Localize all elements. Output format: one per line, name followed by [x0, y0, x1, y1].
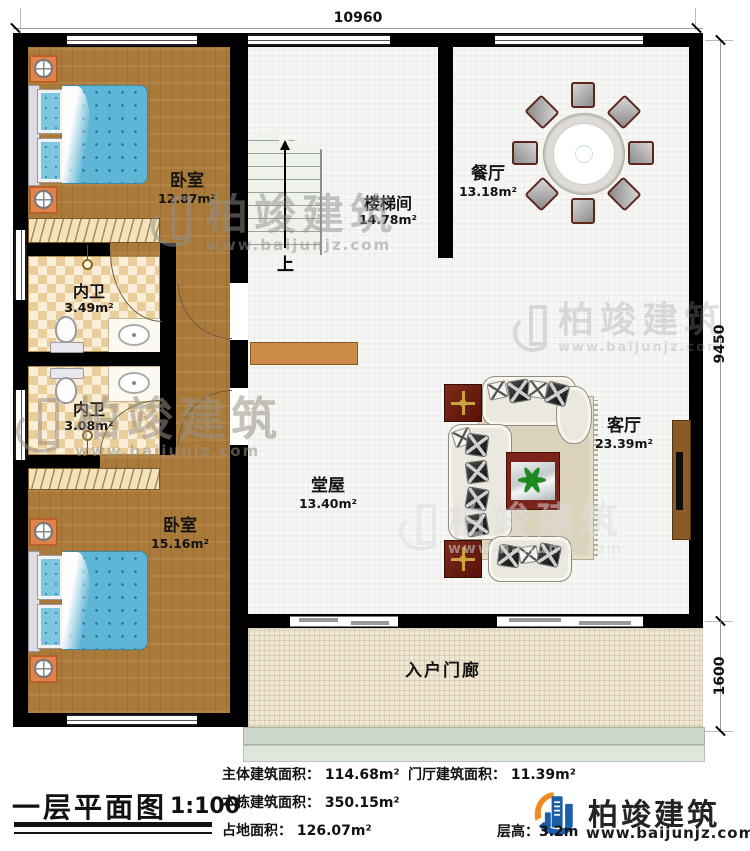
toilet1-tank — [50, 342, 84, 353]
toilet1-bowl — [55, 316, 77, 343]
porch-step-2 — [243, 745, 705, 762]
bed-sheet-fold — [62, 86, 92, 183]
nightstand — [29, 518, 58, 546]
window-bedroom2-bottom — [67, 714, 197, 726]
stat-footprint-area: 占地面积： 126.07m² — [222, 820, 372, 840]
dining-chair — [571, 82, 595, 108]
hall-area: 13.40m² — [290, 497, 366, 511]
bed2-pillow — [38, 605, 63, 648]
dining-label: 餐厅 13.18m² — [448, 165, 528, 199]
window-bath2-left — [14, 390, 27, 460]
nightstand — [29, 55, 58, 83]
stairwell-area: 14.78m² — [348, 213, 428, 227]
bath1-name: 内卫 — [53, 283, 125, 301]
wall-inner-vertical-b — [230, 340, 248, 388]
side-table — [444, 540, 482, 578]
sliding-door-porch-left — [290, 616, 398, 627]
hall-label: 堂屋 13.40m² — [290, 477, 366, 511]
wardrobe-2 — [28, 468, 160, 490]
bath2-label: 内卫 3.08m² — [53, 401, 125, 434]
wall-inner-vertical-a — [230, 47, 248, 283]
living-name: 客厅 — [586, 417, 662, 437]
dining-chair — [512, 141, 538, 165]
bedroom1-area: 12.87m² — [147, 192, 227, 206]
side-table — [444, 384, 482, 422]
sofa-cushion — [464, 512, 489, 537]
bedroom2-area: 15.16m² — [140, 537, 220, 551]
stairs-up-arrow-icon — [280, 140, 290, 150]
dim-label-right: 9450 — [712, 324, 728, 364]
hall-cabinet — [250, 342, 358, 365]
bathroom1-basin — [118, 324, 150, 346]
bed1-duvet — [63, 85, 148, 184]
title-rule-thick — [14, 822, 212, 827]
bath1-area: 3.49m² — [53, 301, 125, 315]
bedroom1-name: 卧室 — [147, 172, 227, 192]
wall-left — [13, 33, 28, 727]
dining-name: 餐厅 — [448, 165, 528, 185]
stat-main-area: 主体建筑面积： 114.68m² — [222, 764, 400, 784]
lamp-icon — [34, 659, 53, 678]
living-area: 23.39m² — [586, 437, 662, 451]
lamp-icon — [34, 59, 53, 78]
bedroom2-label: 卧室 15.16m² — [140, 517, 220, 551]
sliding-door-porch-right — [497, 616, 643, 627]
stairwell-label: 楼梯间 14.78m² — [348, 195, 428, 228]
nightstand — [29, 186, 58, 214]
bath2-name: 内卫 — [53, 401, 125, 419]
sofa-cushion — [465, 433, 490, 458]
bath2-area: 3.08m² — [53, 419, 125, 433]
pendant-cord — [87, 440, 88, 454]
bedroom2-name: 卧室 — [140, 517, 220, 537]
dim-label-top: 10960 — [328, 10, 388, 26]
bath1-label: 内卫 3.49m² — [53, 283, 125, 316]
title-rule-thin — [14, 832, 212, 834]
dining-table-center — [575, 145, 593, 163]
bed1-pillow — [38, 139, 63, 182]
brand-url: www.baijunjz.com — [586, 824, 750, 842]
lamp-icon — [34, 190, 53, 209]
bed2-pillow — [38, 556, 63, 599]
sofa-cushion — [465, 460, 490, 485]
dining-area: 13.18m² — [448, 185, 528, 199]
window-bath1-left — [14, 230, 27, 300]
page-title: 一层平面图 — [12, 786, 167, 826]
lamp-icon — [34, 522, 53, 541]
bathroom2-basin — [118, 372, 150, 394]
window-bedroom1-top — [67, 34, 197, 46]
wall-bath1-top — [13, 243, 110, 256]
stat-total-area: 本栋建筑面积： 350.15m² — [222, 792, 400, 812]
dim-label-porch: 1600 — [712, 656, 728, 696]
wardrobe-1 — [28, 218, 160, 243]
bed1-pillow — [38, 90, 63, 133]
window-stairwell-top — [248, 34, 390, 46]
dining-chair — [628, 141, 654, 165]
tv-icon — [676, 452, 683, 510]
living-label: 客厅 23.39m² — [586, 417, 662, 451]
stairs-up-label: 上 — [277, 250, 294, 275]
stat-floor-height: 层高：3.2m — [497, 821, 578, 841]
plant-icon — [518, 466, 546, 494]
nightstand — [29, 655, 58, 683]
hall-name: 堂屋 — [290, 477, 366, 497]
floor-plan-canvas: 上 — [0, 0, 750, 851]
bed2-duvet — [63, 551, 148, 650]
stairwell-name: 楼梯间 — [348, 195, 428, 213]
wall-right — [689, 33, 703, 628]
stairs-direction-line — [284, 150, 286, 248]
sofa-cushion — [464, 486, 489, 511]
wall-dining-partition — [438, 47, 453, 258]
pendant-light-icon — [82, 259, 93, 270]
bed-sheet-fold — [62, 552, 92, 649]
bedroom1-label: 卧室 12.87m² — [147, 172, 227, 206]
dim-extension — [20, 8, 21, 30]
porch-label: 入户门廊 — [405, 656, 481, 681]
stat-foyer-area: 门厅建筑面积： 11.39m² — [408, 764, 576, 784]
dim-line-top — [13, 28, 703, 29]
porch-step-1 — [243, 727, 705, 745]
window-dining-top — [495, 34, 643, 46]
wall-bath-middle — [13, 352, 160, 366]
sofa-cushion — [536, 542, 562, 568]
wall-inner-vertical-c — [230, 445, 248, 727]
wall-bath-right — [160, 243, 176, 455]
dining-chair — [571, 198, 595, 224]
